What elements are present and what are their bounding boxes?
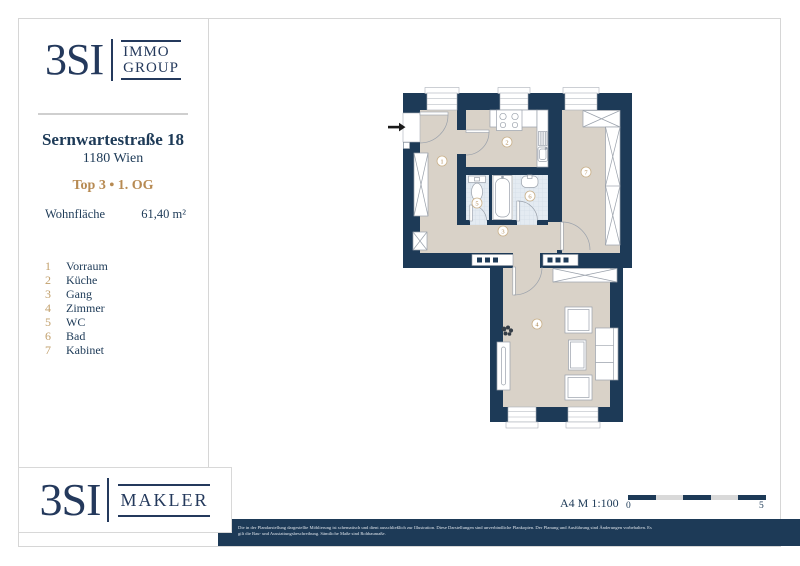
logo-vertical-rule	[111, 39, 113, 81]
svg-text:3: 3	[501, 228, 504, 235]
entrance-door-leaf	[420, 112, 448, 115]
sheet-scale-label: A4 M 1:100	[560, 496, 619, 511]
stove-icon	[497, 110, 523, 131]
area-row: Wohnfläche 61,40 m²	[18, 207, 208, 222]
room-badge-bad: 6	[525, 191, 535, 201]
room-badge-wc: 5	[472, 198, 482, 208]
scale-bar-segment	[628, 495, 656, 500]
wardrobe-kabinet-right	[606, 127, 621, 245]
area-value: 61,40 m²	[141, 207, 186, 222]
makler-vertical-rule	[107, 478, 109, 522]
floor-plan-svg: 1 2 3 4 5 6 7	[385, 80, 645, 430]
legend-item-kabinet: 7 Kabinet	[45, 343, 108, 357]
sideboard	[497, 342, 510, 390]
legend-label: Kabinet	[66, 343, 104, 358]
legend-item-bad: 6 Bad	[45, 329, 108, 343]
legend-number: 6	[45, 329, 66, 344]
legend-label: Gang	[66, 287, 92, 302]
wardrobe-zimmer-top	[553, 269, 617, 283]
logo-division-line2: GROUP	[123, 60, 179, 76]
window	[563, 88, 599, 111]
svg-text:1: 1	[440, 158, 443, 165]
scale-bar-segment	[738, 495, 766, 500]
opening-kabinet	[548, 222, 562, 250]
svg-text:5: 5	[475, 200, 478, 207]
legend-number: 1	[45, 259, 66, 274]
legend-number: 3	[45, 287, 66, 302]
opening-zimmer	[513, 253, 540, 268]
company-logo: 3SI IMMO GROUP	[18, 38, 208, 82]
legend-item-kueche: 2 Küche	[45, 273, 108, 287]
scale-start-label: 0	[626, 501, 631, 511]
window	[498, 88, 530, 111]
disclaimer-text: Die in der Plandarstellung dargestellte …	[238, 525, 790, 537]
logo-brand-text: 3SI	[45, 38, 103, 82]
logo-division-line1: IMMO	[123, 44, 179, 60]
legend-number: 7	[45, 343, 66, 358]
radiator	[472, 255, 513, 266]
property-city: 1180 Wien	[18, 151, 208, 167]
scale-bar-segment	[683, 495, 711, 500]
legend-item-zimmer: 4 Zimmer	[45, 301, 108, 315]
opening-kueche	[457, 130, 466, 154]
wardrobe-kabinet-top	[583, 111, 620, 128]
legend-label: Zimmer	[66, 301, 105, 316]
wardrobe-vorraum	[414, 153, 428, 216]
washbasin-icon	[522, 175, 539, 188]
sink-icon	[538, 147, 548, 162]
opening-bad	[517, 220, 537, 225]
makler-brand-text: 3SI	[40, 477, 101, 523]
bathtub-icon	[493, 176, 512, 220]
makler-logo: 3SI MAKLER	[18, 467, 232, 533]
disclaimer-bar: Die in der Plandarstellung dargestellte …	[218, 519, 800, 546]
legend-item-gang: 3 Gang	[45, 287, 108, 301]
logo-division: IMMO GROUP	[121, 40, 181, 80]
property-street: Sernwartestraße 18	[18, 130, 208, 150]
floorplan-page: { "colors": { "navy": "#1d3a57", "gold":…	[0, 0, 800, 566]
legend-label: Bad	[66, 329, 85, 344]
room-legend: 1 Vorraum 2 Küche 3 Gang 4 Zimmer 5 WC 6…	[45, 259, 108, 357]
room-zimmer-floor	[503, 268, 610, 407]
legend-number: 2	[45, 273, 66, 288]
logo-divider-line	[38, 113, 188, 115]
legend-label: WC	[66, 315, 85, 330]
room-badge-vorraum: 1	[437, 156, 447, 166]
scale-bar-segment	[711, 495, 739, 500]
legend-number: 5	[45, 315, 66, 330]
armchair	[565, 307, 592, 333]
sofa	[596, 328, 619, 380]
legend-label: Küche	[66, 273, 97, 288]
scale-bar-segment	[656, 495, 684, 500]
svg-text:2: 2	[505, 139, 508, 146]
disclaimer-line2: gilt die Bau- und Ausstattungsbeschreibu…	[238, 531, 790, 537]
room-badge-gang: 3	[498, 226, 508, 236]
window	[506, 407, 538, 428]
legend-label: Vorraum	[66, 259, 108, 274]
corridor-floor	[420, 225, 557, 253]
coffee-table	[569, 340, 587, 370]
scale-bar	[628, 495, 766, 500]
radiator	[543, 255, 578, 266]
room-badge-zimmer: 4	[532, 319, 542, 329]
window	[566, 407, 600, 428]
area-label: Wohnfläche	[45, 207, 105, 222]
legend-item-wc: 5 WC	[45, 315, 108, 329]
window	[425, 88, 459, 111]
windows-top	[425, 88, 599, 111]
armchair	[565, 375, 592, 400]
room-badge-kueche: 2	[502, 137, 512, 147]
legend-item-vorraum: 1 Vorraum	[45, 259, 108, 273]
scale-end-label: 5	[759, 501, 764, 511]
makler-division-text: MAKLER	[118, 484, 210, 517]
dish-drainer-icon	[539, 132, 548, 146]
room-badge-kabinet: 7	[581, 167, 591, 177]
panel-divider	[208, 18, 209, 468]
floor-plan: 1 2 3 4 5 6 7	[385, 80, 645, 430]
property-unit: Top 3 • 1. OG	[18, 178, 208, 194]
corner-unit-vorraum	[413, 232, 427, 250]
legend-number: 4	[45, 301, 66, 316]
